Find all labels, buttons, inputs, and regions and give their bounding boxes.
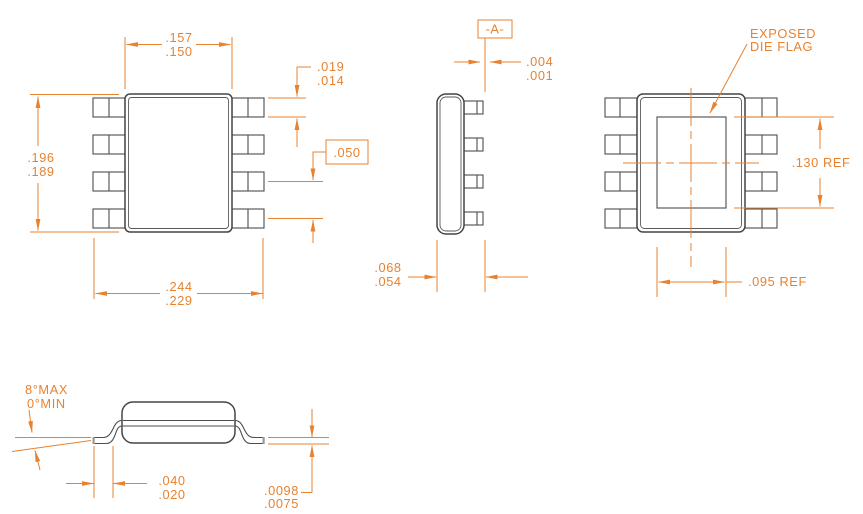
pin: [605, 98, 637, 117]
pin: [745, 135, 777, 154]
bottom-view: EXPOSED DIE FLAG .130 REF .095 REF: [605, 26, 850, 297]
lead-span-max-label: .244: [165, 279, 192, 294]
right-lead-bottom-line: [235, 426, 263, 444]
angle-arrow-bottom: [35, 451, 40, 471]
pin: [605, 209, 637, 228]
lead-span-min-label: .229: [165, 293, 192, 308]
die-flag-width-label: .095 REF: [748, 274, 807, 289]
body-width-min-label: .150: [165, 44, 192, 59]
foot-length-max-label: .040: [158, 473, 185, 488]
pin: [605, 172, 637, 191]
side-body-outline: [437, 94, 464, 234]
foot-length-min-label: .020: [158, 487, 185, 502]
lead-pitch-label: .050: [333, 145, 360, 160]
standoff-min-label: .001: [526, 68, 553, 83]
body-width-max-label: .157: [165, 30, 192, 45]
lead-angle-min-label: 0°MIN: [27, 396, 66, 411]
pitch-leader-arrow: [313, 152, 326, 180]
pin: [745, 172, 777, 191]
lead-thickness-min-label: .0075: [264, 496, 299, 511]
package-outline-drawing: .157 .150 .196 .189 .244 .229 .019 .014 …: [0, 0, 863, 514]
lead-edge: [464, 212, 483, 225]
body-height-min-label: .189: [27, 164, 54, 179]
lead-edge: [464, 101, 483, 114]
die-flag-length-label: .130 REF: [792, 155, 851, 170]
datum-a-label: -A-: [486, 22, 505, 37]
side-view: -A- .004 .001 .068 .054: [374, 20, 553, 292]
lead-edge: [464, 138, 483, 151]
standoff-max-label: .004: [526, 54, 553, 69]
angle-slanted-line: [12, 441, 91, 452]
pin: [745, 209, 777, 228]
angle-arrow-top: [29, 410, 32, 433]
profile-view: 8°MAX 0°MIN .040 .020 .0098 .0075: [12, 382, 329, 511]
body-height-max-label: .196: [27, 150, 54, 165]
drawing-svg: .157 .150 .196 .189 .244 .229 .019 .014 …: [0, 0, 863, 514]
profile-body-outline: [122, 402, 235, 443]
lead-width-max-label: .019: [317, 59, 344, 74]
exposed-die-flag-note-line2: DIE FLAG: [750, 39, 813, 54]
lead-angle-max-label: 8°MAX: [25, 382, 68, 397]
lead-edge: [464, 175, 483, 188]
front-view: .157 .150 .196 .189 .244 .229 .019 .014 …: [27, 30, 368, 308]
pin: [745, 98, 777, 117]
left-lead-bottom-line: [94, 426, 122, 444]
pin: [605, 135, 637, 154]
thickness-max-label: .068: [374, 260, 401, 275]
package-body-outline: [125, 94, 232, 232]
right-lead-tip: [263, 437, 265, 444]
left-lead-tip: [93, 437, 95, 444]
thickness-min-label: .054: [374, 274, 401, 289]
lead-width-min-label: .014: [317, 73, 344, 88]
